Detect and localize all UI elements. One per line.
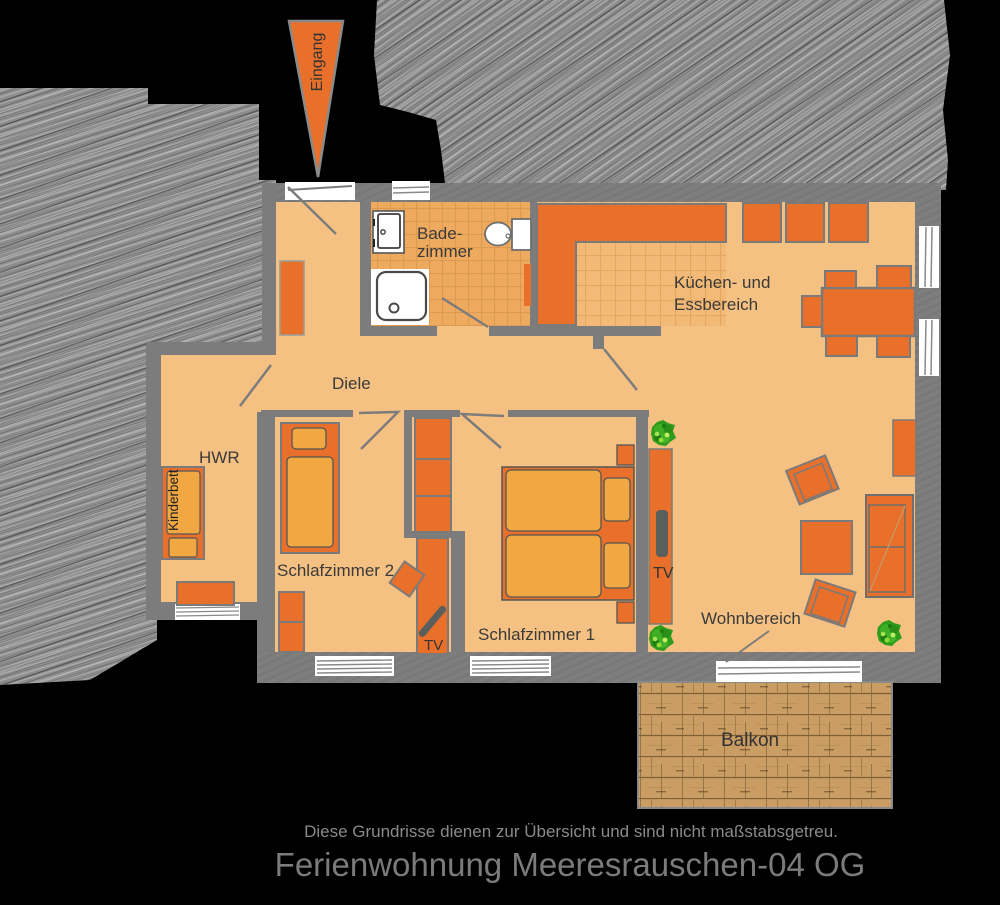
svg-text:Eingang: Eingang — [309, 33, 326, 92]
svg-text:Kinderbett: Kinderbett — [166, 469, 181, 531]
svg-text:Ferienwohnung Meeresrauschen-0: Ferienwohnung Meeresrauschen-04 OG — [275, 846, 866, 883]
svg-text:HWR: HWR — [199, 448, 240, 467]
svg-text:TV: TV — [653, 565, 674, 582]
svg-text:Bade-: Bade- — [417, 224, 462, 243]
svg-text:Schlafzimmer 1: Schlafzimmer 1 — [478, 625, 595, 644]
svg-text:Essbereich: Essbereich — [674, 295, 758, 314]
svg-text:Küchen- und: Küchen- und — [674, 273, 770, 292]
svg-text:zimmer: zimmer — [417, 242, 473, 261]
svg-text:Diese Grundrisse dienen zur Üb: Diese Grundrisse dienen zur Übersicht un… — [304, 822, 838, 841]
svg-text:Balkon: Balkon — [721, 730, 779, 751]
svg-text:TV: TV — [424, 637, 443, 654]
svg-text:Schlafzimmer 2: Schlafzimmer 2 — [277, 561, 394, 580]
svg-text:Diele: Diele — [332, 374, 371, 393]
svg-text:Wohnbereich: Wohnbereich — [701, 609, 801, 628]
